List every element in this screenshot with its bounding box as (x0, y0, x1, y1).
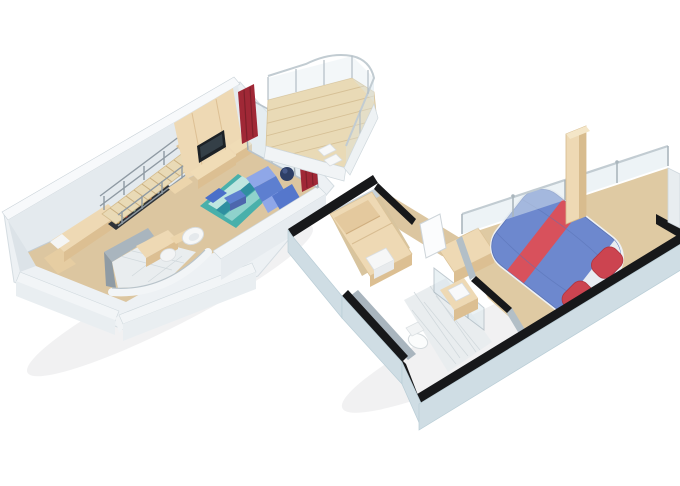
right-end-wall (668, 168, 680, 228)
balcony (262, 55, 382, 181)
floorplan-svg (0, 0, 680, 486)
round-chair (280, 167, 294, 181)
timber-column (566, 126, 590, 224)
floorplan-canvas (0, 0, 680, 486)
upper-unit-loft-living-room (2, 55, 382, 341)
